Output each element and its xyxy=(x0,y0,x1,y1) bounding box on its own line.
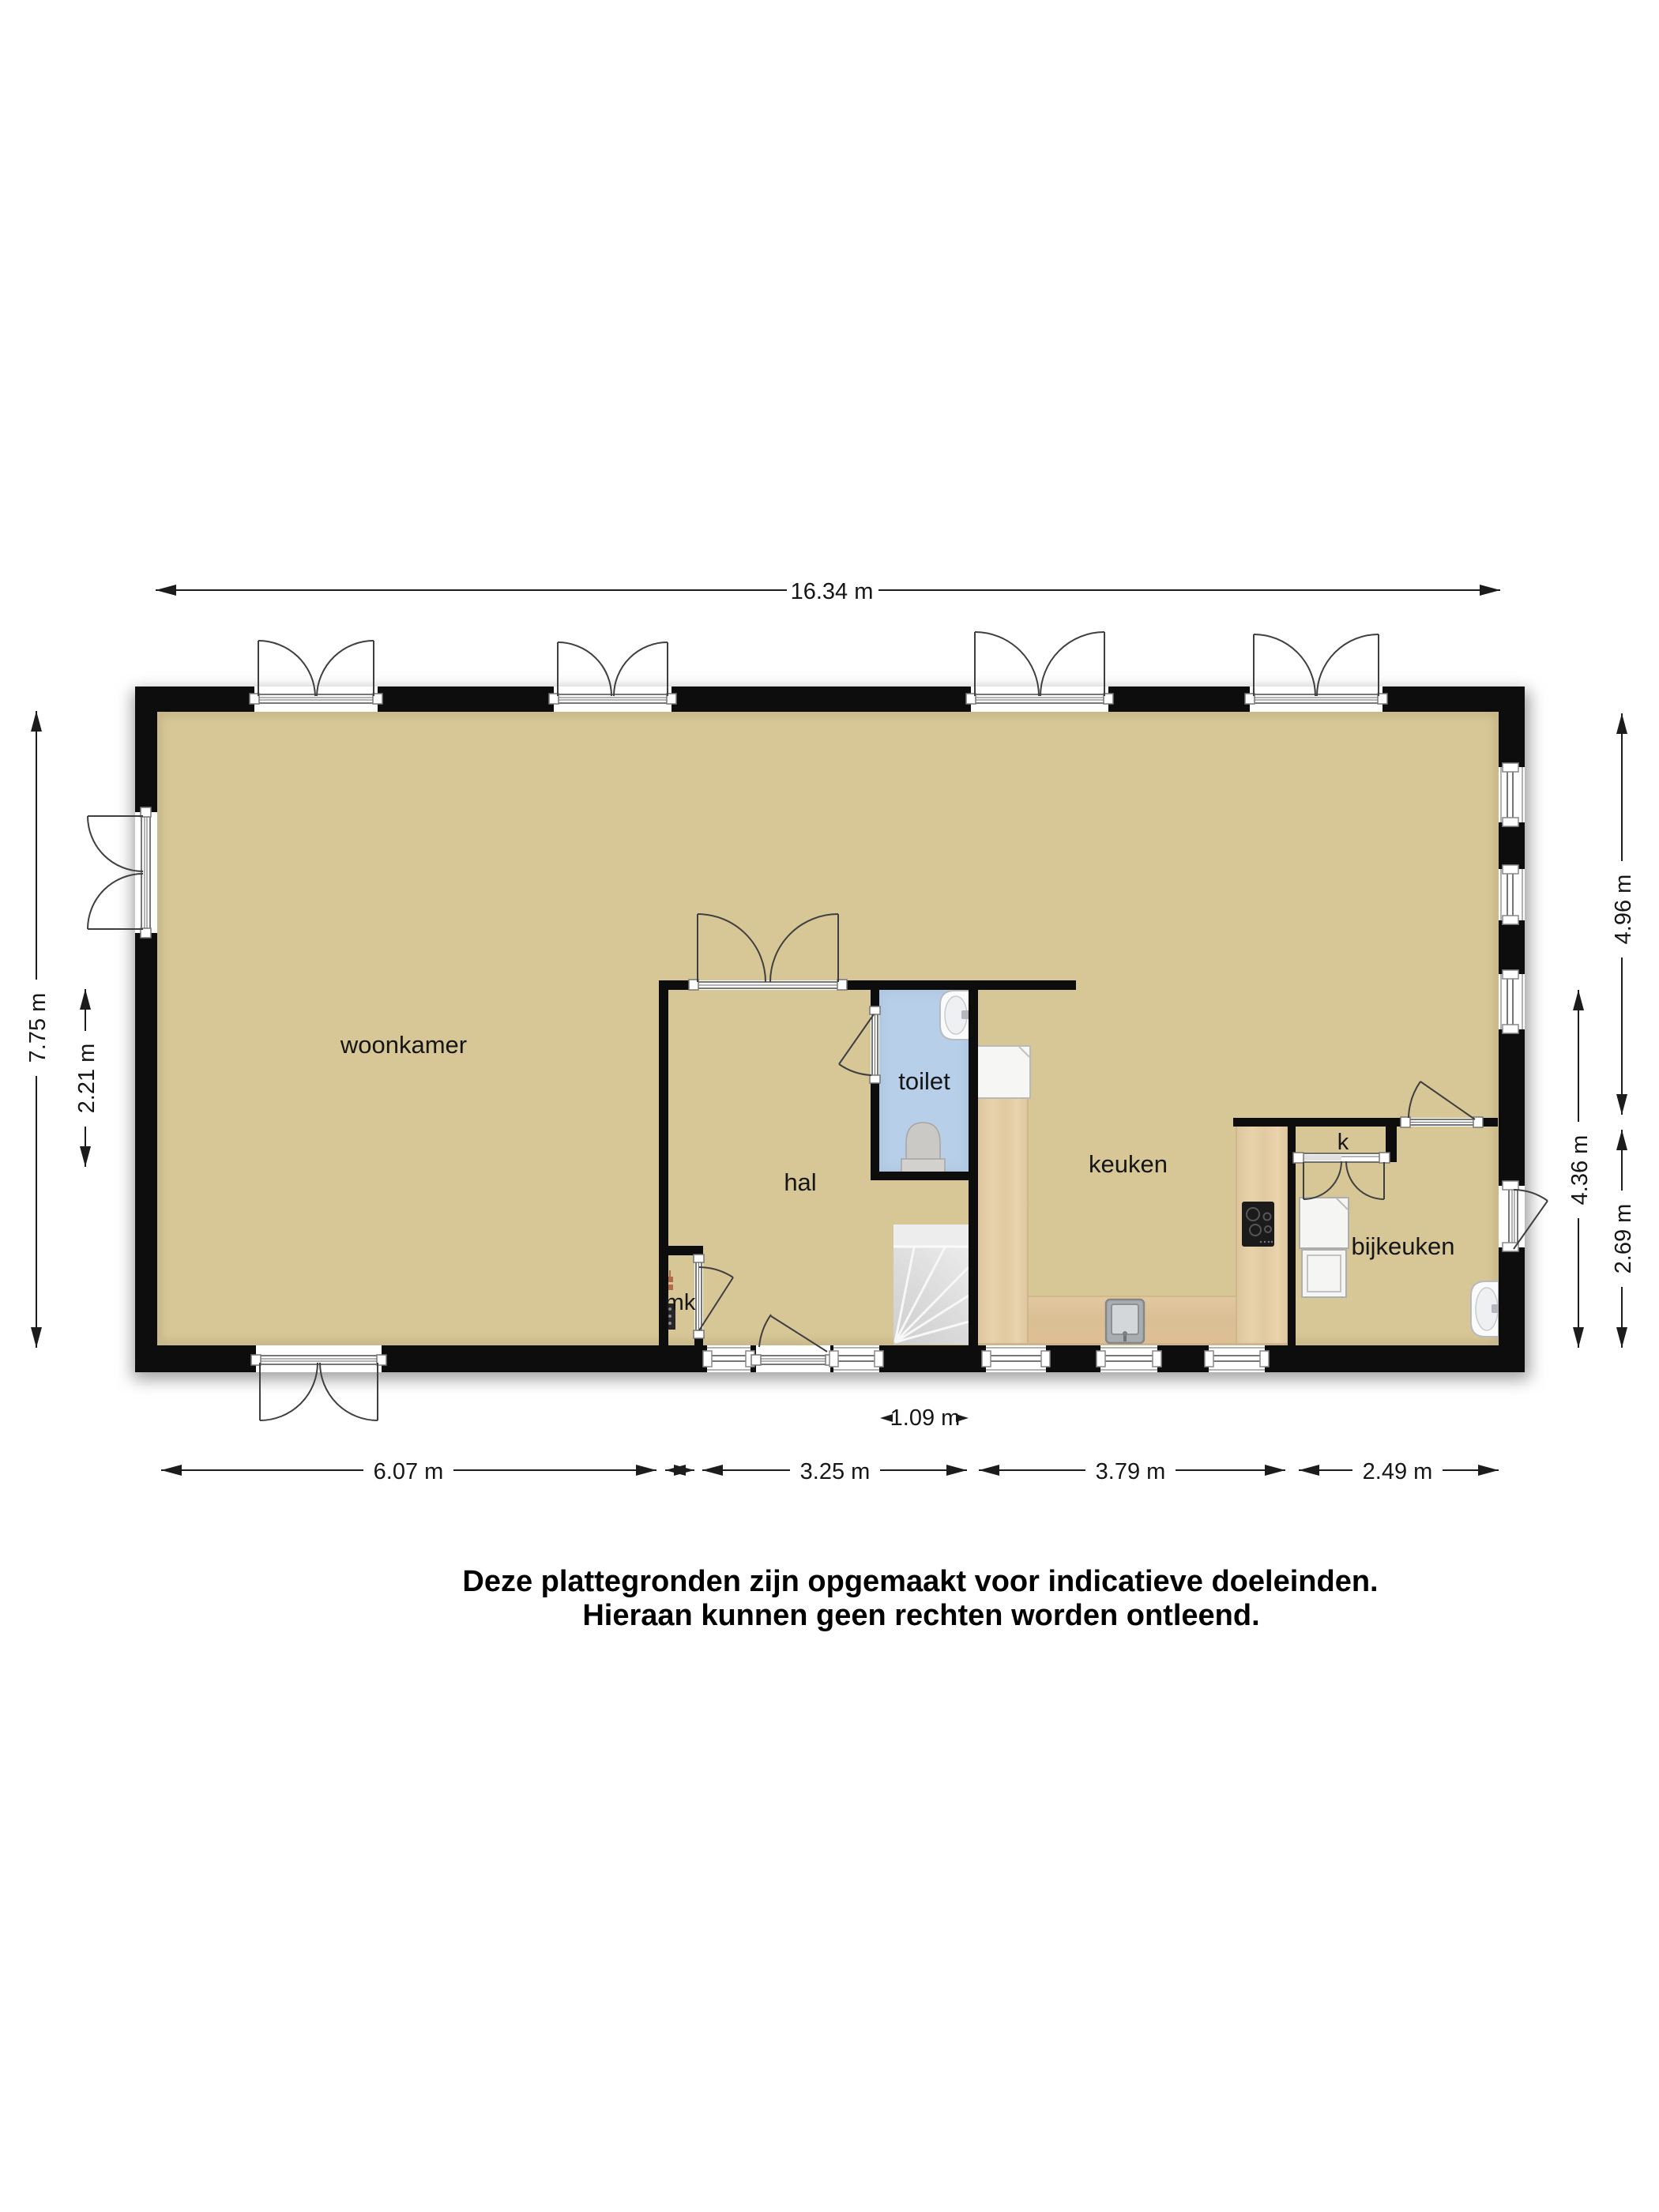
svg-text:16.34 m: 16.34 m xyxy=(791,579,874,604)
svg-text:woonkamer: woonkamer xyxy=(340,1031,467,1059)
svg-text:3.79 m: 3.79 m xyxy=(1096,1459,1166,1484)
svg-text:4.36 m: 4.36 m xyxy=(1567,1135,1593,1206)
svg-text:1.09 m: 1.09 m xyxy=(890,1405,961,1431)
svg-text:Deze plattegronden zijn opgema: Deze plattegronden zijn opgemaakt voor i… xyxy=(462,1565,1378,1598)
svg-text:3.25 m: 3.25 m xyxy=(800,1459,871,1484)
svg-text:7.75 m: 7.75 m xyxy=(25,993,51,1063)
svg-text:hal: hal xyxy=(784,1168,816,1196)
svg-text:2.49 m: 2.49 m xyxy=(1363,1459,1433,1484)
svg-text:k: k xyxy=(1337,1130,1349,1155)
svg-text:toilet: toilet xyxy=(898,1067,950,1095)
svg-text:2.21 m: 2.21 m xyxy=(74,1044,100,1114)
svg-text:mk: mk xyxy=(665,1290,696,1315)
svg-text:Hieraan kunnen geen rechten wo: Hieraan kunnen geen rechten worden ontle… xyxy=(582,1599,1259,1632)
svg-text:6.07 m: 6.07 m xyxy=(374,1459,444,1484)
svg-text:2.69 m: 2.69 m xyxy=(1611,1204,1636,1274)
svg-text:bijkeuken: bijkeuken xyxy=(1352,1232,1455,1260)
svg-text:4.96 m: 4.96 m xyxy=(1611,875,1636,945)
svg-text:keuken: keuken xyxy=(1089,1150,1168,1178)
